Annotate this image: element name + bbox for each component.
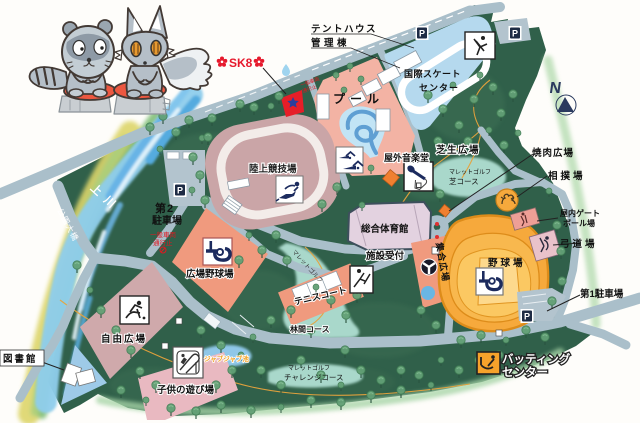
svg-text:総合体育館: 総合体育館 xyxy=(361,223,409,235)
svg-text:国際スケート: 国際スケート xyxy=(404,68,461,79)
svg-text:施設受付: 施設受付 xyxy=(366,250,405,262)
svg-text:焼肉広場: 焼肉広場 xyxy=(532,147,574,159)
svg-text:チャレンジコース: チャレンジコース xyxy=(284,373,344,382)
svg-text:駐車場: 駐車場 xyxy=(152,214,182,227)
svg-text:相撲場: 相撲場 xyxy=(548,170,586,182)
svg-text:センター: センター xyxy=(419,82,459,93)
svg-text:マレットゴルフ: マレットゴルフ xyxy=(449,168,491,176)
svg-text:マレットゴルフ: マレットゴルフ xyxy=(288,364,330,372)
svg-text:通行止: 通行止 xyxy=(153,238,173,247)
svg-text:陸上競技場: 陸上競技場 xyxy=(249,163,297,175)
svg-text:野球場: 野球場 xyxy=(488,257,526,269)
svg-text:自由広場: 自由広場 xyxy=(101,333,147,345)
svg-text:芝コース: 芝コース xyxy=(449,176,479,186)
svg-text:屋外音楽堂: 屋外音楽堂 xyxy=(384,152,429,163)
svg-text:バッティング: バッティング xyxy=(502,352,571,366)
svg-text:広場野球場: 広場野球場 xyxy=(186,268,234,280)
svg-text:屋内ゲート: 屋内ゲート xyxy=(560,208,600,218)
svg-text:第1駐車場: 第1駐車場 xyxy=(580,288,624,300)
svg-text:弓道場: 弓道場 xyxy=(560,238,598,250)
svg-text:センター: センター xyxy=(502,365,548,379)
svg-text:芝生広場: 芝生広場 xyxy=(436,144,480,156)
svg-text:ボール場: ボール場 xyxy=(563,218,595,228)
svg-text:プール: プール xyxy=(333,91,384,106)
svg-text:ジャブジャブ池: ジャブジャブ池 xyxy=(204,354,249,363)
svg-text:SK8: SK8 xyxy=(229,56,253,70)
svg-text:図書館: 図書館 xyxy=(3,353,38,365)
svg-text:管理棟: 管理棟 xyxy=(311,37,350,49)
svg-text:一般車両: 一般車両 xyxy=(150,230,177,239)
svg-text:林間コース: 林間コース xyxy=(290,324,330,334)
svg-text:第2: 第2 xyxy=(155,201,174,215)
svg-text:子供の遊び場: 子供の遊び場 xyxy=(157,384,215,396)
svg-text:テントハウス: テントハウス xyxy=(311,24,377,35)
